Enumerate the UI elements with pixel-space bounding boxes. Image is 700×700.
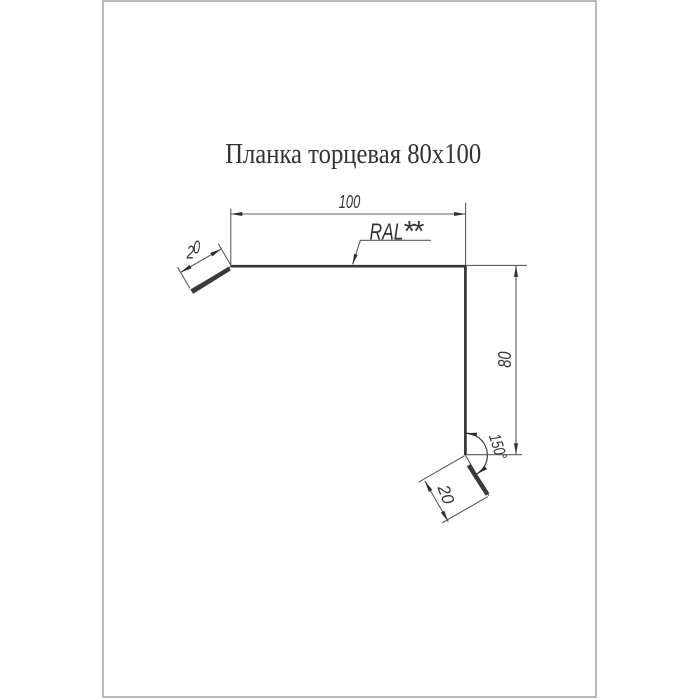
svg-text:**: ** xyxy=(404,216,424,248)
svg-text:100: 100 xyxy=(339,191,361,212)
svg-text:Планка торцевая 80x100: Планка торцевая 80x100 xyxy=(225,139,481,170)
svg-text:RAL: RAL xyxy=(370,219,404,245)
svg-text:80: 80 xyxy=(494,351,515,368)
svg-text:0: 0 xyxy=(193,236,200,257)
